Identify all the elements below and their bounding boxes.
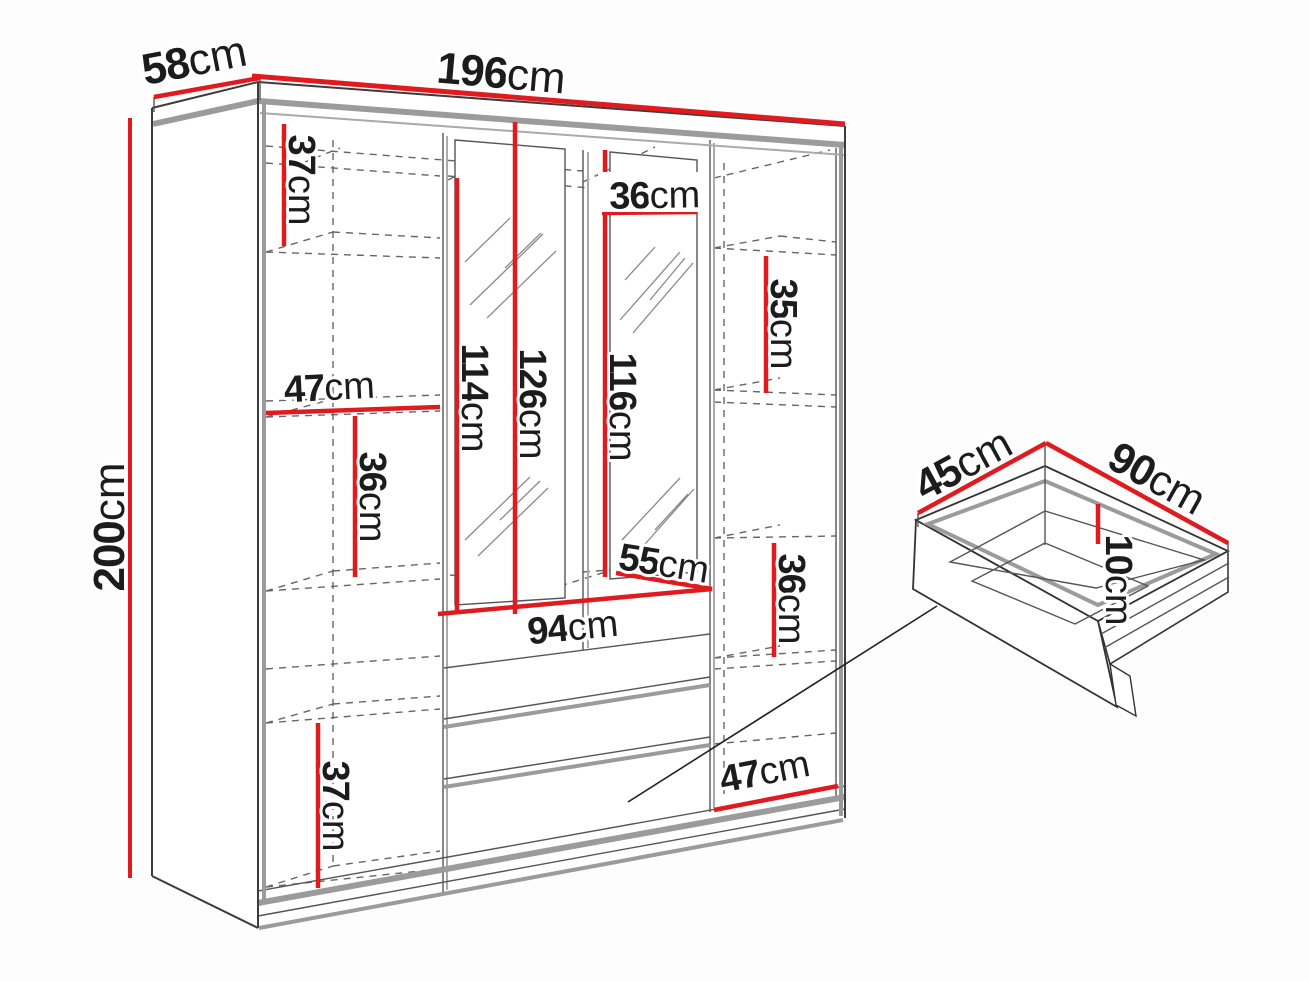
dim-label-37cm-top: 37cm: [280, 135, 322, 226]
dim-label-36cm-left: 36cm: [351, 452, 393, 543]
drawer-foot: [1110, 664, 1136, 716]
dim-label-35cm-right: 35cm: [762, 279, 804, 370]
wardrobe-front-view: [152, 78, 845, 928]
diagram-canvas: 58cm 196cm 200cm 37cm 47cm 36cm 114cm 12…: [0, 0, 1309, 981]
dim-label-116cm: 116cm: [601, 353, 643, 462]
side-panel-face: [152, 82, 258, 928]
dim-label-47cm-left: 47cm: [283, 365, 376, 412]
dim-label-37cm-bottom: 37cm: [314, 761, 356, 852]
dim-label-36cm-right: 36cm: [770, 554, 812, 645]
dim-label-94cm: 94cm: [526, 603, 621, 654]
dim-label-10cm-drawer: 10cm: [1097, 535, 1139, 626]
dim-label-200cm: 200cm: [85, 462, 134, 591]
dim-label-126cm: 126cm: [511, 348, 553, 459]
dim-label-114cm: 114cm: [453, 344, 495, 453]
dimension-diagram-page: 58cm 196cm 200cm 37cm 47cm 36cm 114cm 12…: [0, 0, 1309, 981]
dim-label-36cm-mirror-top: 36cm: [609, 174, 701, 218]
